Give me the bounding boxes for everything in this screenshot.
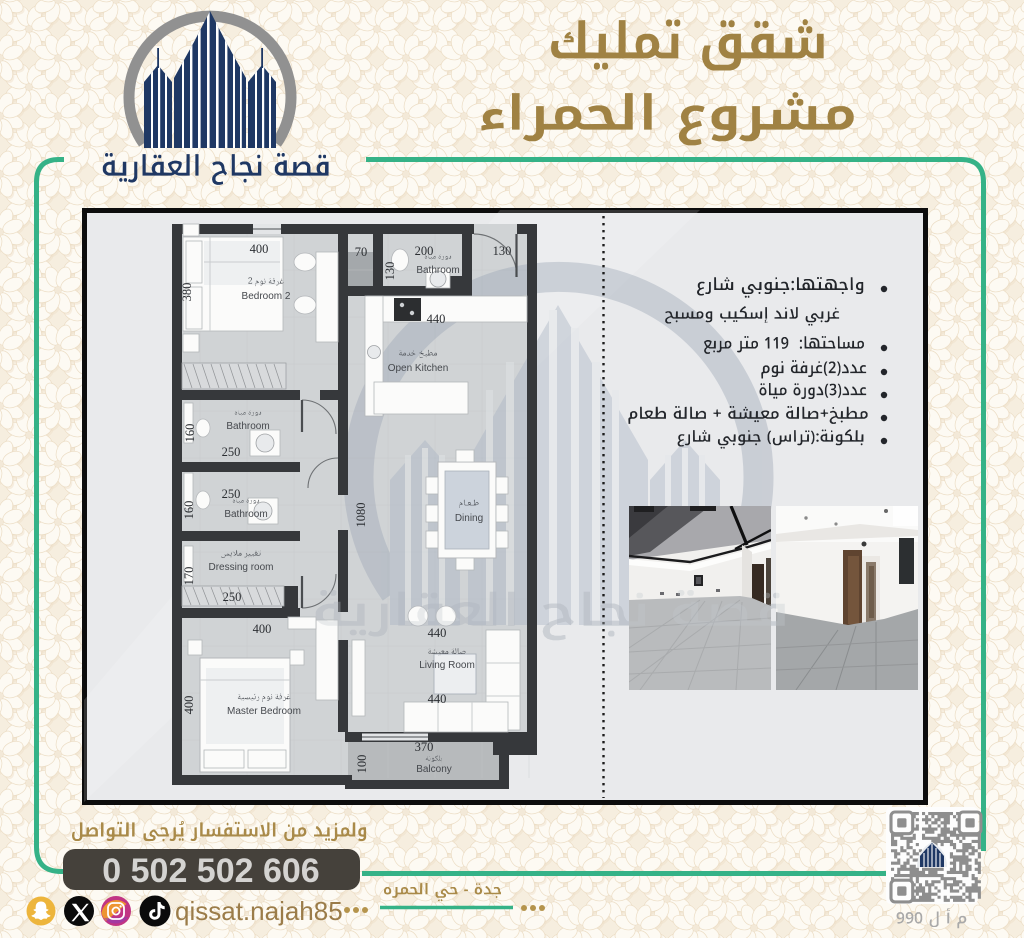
svg-text:250: 250: [222, 487, 241, 501]
svg-text:Living Room: Living Room: [419, 660, 475, 671]
svg-text:100: 100: [355, 755, 369, 774]
svg-text:1080: 1080: [354, 503, 368, 528]
svg-text:Master Bedroom: Master Bedroom: [227, 706, 301, 717]
svg-text:Bedroom 2: Bedroom 2: [242, 291, 291, 302]
svg-text:440: 440: [428, 692, 447, 706]
svg-text:440: 440: [427, 312, 446, 326]
svg-text:250: 250: [223, 590, 242, 604]
svg-text:Dining: Dining: [455, 513, 483, 524]
svg-text:0 502 502 606: 0 502 502 606: [102, 852, 319, 890]
svg-text:130: 130: [493, 244, 512, 258]
svg-text:400: 400: [250, 242, 269, 256]
svg-text:130: 130: [383, 262, 397, 281]
svg-text:qissat.najah85: qissat.najah85: [175, 896, 343, 926]
svg-text:Bathroom: Bathroom: [416, 265, 459, 276]
svg-text:400: 400: [253, 622, 272, 636]
svg-text:Dressing room: Dressing room: [208, 562, 273, 573]
svg-text:Balcony: Balcony: [416, 764, 452, 775]
svg-text:160: 160: [182, 501, 196, 520]
svg-text:380: 380: [180, 283, 194, 302]
svg-text:Bathroom: Bathroom: [226, 421, 269, 432]
svg-text:160: 160: [183, 424, 197, 443]
svg-text:70: 70: [355, 245, 368, 259]
svg-text:400: 400: [182, 696, 196, 715]
svg-text:250: 250: [222, 445, 241, 459]
svg-text:370: 370: [415, 740, 434, 754]
svg-text:170: 170: [182, 567, 196, 586]
svg-text:Open Kitchen: Open Kitchen: [388, 363, 449, 374]
svg-text:200: 200: [415, 244, 434, 258]
svg-text:Bathroom: Bathroom: [224, 509, 267, 520]
svg-text:440: 440: [428, 626, 447, 640]
